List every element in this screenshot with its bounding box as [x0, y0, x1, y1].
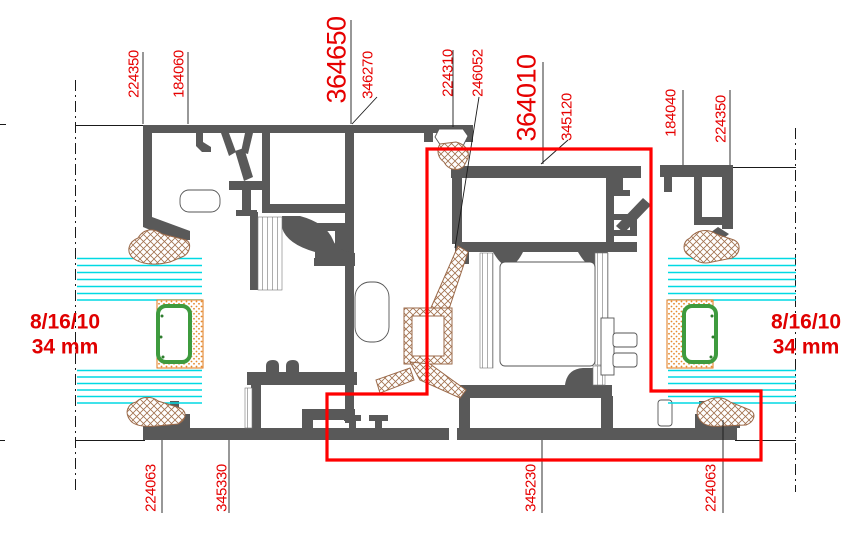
part-label-345120: 345120	[560, 93, 575, 141]
part-label-184040: 184040	[664, 89, 679, 137]
part-label-224310: 224310	[441, 49, 456, 97]
part-label-224063-left: 224063	[144, 464, 159, 512]
right-frame-top-bar	[660, 165, 733, 177]
gaskets	[127, 142, 754, 426]
glazing-note-right-line2: 34 mm	[773, 337, 840, 358]
gasket-right-bottom	[697, 398, 754, 427]
part-label-246052: 246052	[471, 49, 486, 97]
sill-plate	[143, 428, 737, 440]
gasket-right-top	[684, 231, 739, 264]
part-label-364650: 364650	[324, 16, 351, 103]
part-label-224350-right: 224350	[714, 95, 729, 143]
part-label-364010: 364010	[514, 54, 541, 141]
gasket-center-arm-top	[430, 246, 468, 312]
glass-left-inner	[77, 371, 202, 404]
part-label-345230: 345230	[524, 464, 539, 512]
part-label-345330: 345330	[215, 464, 230, 512]
technical-drawing: 224350 184060 364650 346270 224310 24605…	[0, 0, 860, 535]
gasket-top-center	[438, 142, 468, 169]
glass-right-outer	[668, 259, 796, 301]
d-clip	[355, 282, 389, 342]
glass-left-outer	[77, 259, 202, 301]
glazing-note-right-line1: 8/16/10	[771, 312, 841, 333]
glazing-note-left-line2: 34 mm	[32, 337, 99, 358]
part-label-224063-right: 224063	[704, 464, 719, 512]
frame-left-wall	[143, 125, 152, 221]
sash-bottom-rail	[460, 385, 612, 398]
spacer-right	[684, 306, 716, 362]
frame-top-bar	[143, 125, 473, 142]
right-frame-wall	[722, 177, 733, 229]
glass-right-inner	[668, 371, 796, 404]
part-label-346270: 346270	[361, 51, 376, 99]
part-label-184060: 184060	[172, 50, 187, 98]
glazing-note-left-line1: 8/16/10	[30, 312, 100, 333]
sash-top-bar	[451, 166, 641, 178]
spacer-left	[158, 306, 190, 362]
part-label-224350-left: 224350	[127, 50, 142, 98]
